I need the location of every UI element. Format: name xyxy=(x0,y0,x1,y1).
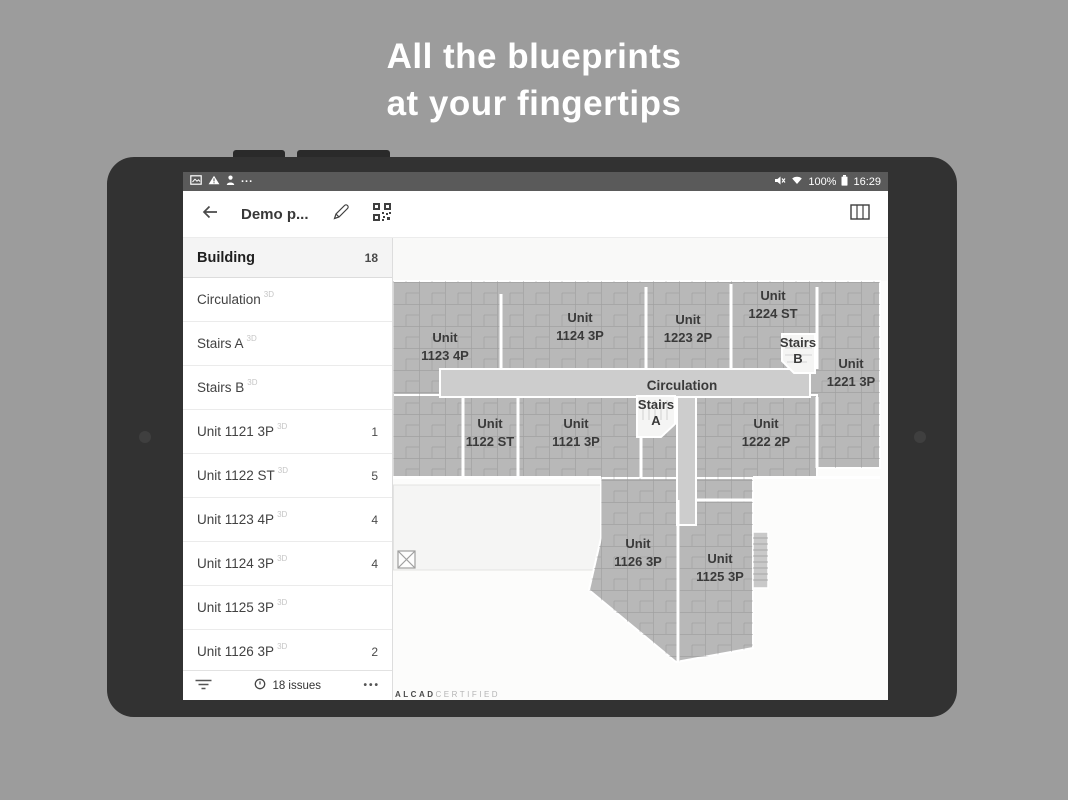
statusbar-overflow-dots: ... xyxy=(241,175,253,183)
app-toolbar: Demo p... xyxy=(183,191,888,238)
watermark-brand: ALCAD xyxy=(395,690,436,699)
balcony-hatch xyxy=(753,532,768,588)
three-d-tag: 3D xyxy=(277,422,287,431)
floorplan-canvas[interactable]: Unit1123 4P Unit1124 3P Unit1223 2P Unit… xyxy=(393,238,887,700)
clock-text: 16:29 xyxy=(853,176,881,188)
battery-icon xyxy=(841,175,848,189)
qr-code-icon[interactable] xyxy=(373,203,391,226)
issues-summary-button[interactable]: 18 issues xyxy=(254,678,321,693)
filter-icon[interactable] xyxy=(195,677,212,695)
three-d-tag: 3D xyxy=(277,510,287,519)
back-icon[interactable] xyxy=(201,204,219,225)
issue-count-badge: 18 xyxy=(365,251,378,265)
issue-count-badge: 4 xyxy=(371,557,378,571)
issue-count-badge: 4 xyxy=(371,513,378,527)
sidebar-item-unit-1123[interactable]: Unit 1123 4P 3D 4 xyxy=(183,498,392,542)
sidebar-item-label: Circulation xyxy=(197,292,261,307)
floorplan-area: Unit1123 4P Unit1124 3P Unit1223 2P Unit… xyxy=(393,238,888,700)
mute-icon xyxy=(774,175,786,189)
sidebar-item-label: Unit 1121 3P xyxy=(197,424,274,439)
corridor-vertical xyxy=(677,397,696,525)
issue-count-badge: 2 xyxy=(371,645,378,659)
sidebar-item-label: Unit 1124 3P xyxy=(197,556,274,571)
tablet-camera-left xyxy=(139,431,151,443)
plan-label-circulation[interactable]: Circulation xyxy=(647,378,718,393)
warning-icon xyxy=(208,175,220,188)
status-bar: ... 100% 16:29 xyxy=(183,172,888,191)
marketing-headline: All the blueprints at your fingertips xyxy=(0,33,1068,127)
crossed-box-symbol xyxy=(398,551,415,568)
sidebar-item-unit-1124[interactable]: Unit 1124 3P 3D 4 xyxy=(183,542,392,586)
more-options-button[interactable]: ••• xyxy=(363,680,380,691)
sidebar-item-label: Unit 1125 3P xyxy=(197,600,274,615)
sidebar-item-circulation[interactable]: Circulation 3D xyxy=(183,278,392,322)
project-title[interactable]: Demo p... xyxy=(241,206,309,223)
sidebar-item-unit-1121[interactable]: Unit 1121 3P 3D 1 xyxy=(183,410,392,454)
layers-sidebar: Building 18 Circulation 3D Stairs A 3D xyxy=(183,238,393,700)
pencil-icon[interactable] xyxy=(331,202,351,227)
three-d-tag: 3D xyxy=(247,334,257,343)
headline-line2: at your fingertips xyxy=(0,80,1068,127)
wifi-icon xyxy=(791,175,803,188)
sidebar-item-stairs-b[interactable]: Stairs B 3D xyxy=(183,366,392,410)
three-d-tag: 3D xyxy=(277,642,287,651)
certification-watermark: ALCADCERTIFIED xyxy=(395,690,500,699)
sidebar-footer-bar: 18 issues ••• xyxy=(183,670,392,700)
three-d-tag: 3D xyxy=(277,554,287,563)
sidebar-item-label: Stairs B xyxy=(197,380,244,395)
sidebar-item-unit-1122[interactable]: Unit 1122 ST 3D 5 xyxy=(183,454,392,498)
watermark-suffix: CERTIFIED xyxy=(436,690,501,699)
three-d-tag: 3D xyxy=(247,378,257,387)
issue-count-badge: 1 xyxy=(371,425,378,439)
map-book-icon[interactable] xyxy=(850,204,870,225)
person-icon xyxy=(226,175,235,188)
battery-percent: 100% xyxy=(808,176,836,188)
issues-label: 18 issues xyxy=(272,680,321,692)
sidebar-item-label: Unit 1126 3P xyxy=(197,644,274,659)
sidebar-item-label: Stairs A xyxy=(197,336,244,351)
sidebar-item-label: Unit 1123 4P xyxy=(197,512,274,527)
sidebar-item-unit-1126[interactable]: Unit 1126 3P 3D 2 xyxy=(183,630,392,670)
tablet-camera-right xyxy=(914,431,926,443)
headline-line1: All the blueprints xyxy=(0,33,1068,80)
issues-icon xyxy=(254,678,266,693)
corridor-horizontal xyxy=(440,369,810,397)
image-icon xyxy=(190,175,202,188)
layers-list: Building 18 Circulation 3D Stairs A 3D xyxy=(183,238,392,670)
sidebar-item-building[interactable]: Building 18 xyxy=(183,238,392,278)
sidebar-item-label: Building xyxy=(197,250,255,266)
sidebar-item-label: Unit 1122 ST xyxy=(197,468,275,483)
courtyard xyxy=(394,485,602,570)
three-d-tag: 3D xyxy=(278,466,288,475)
three-d-tag: 3D xyxy=(277,598,287,607)
app-screen: ... 100% 16:29 Demo p... xyxy=(183,172,888,700)
tablet-frame: ... 100% 16:29 Demo p... xyxy=(107,157,957,717)
issue-count-badge: 5 xyxy=(371,469,378,483)
sidebar-item-unit-1125[interactable]: Unit 1125 3P 3D xyxy=(183,586,392,630)
three-d-tag: 3D xyxy=(264,290,274,299)
sidebar-item-stairs-a[interactable]: Stairs A 3D xyxy=(183,322,392,366)
